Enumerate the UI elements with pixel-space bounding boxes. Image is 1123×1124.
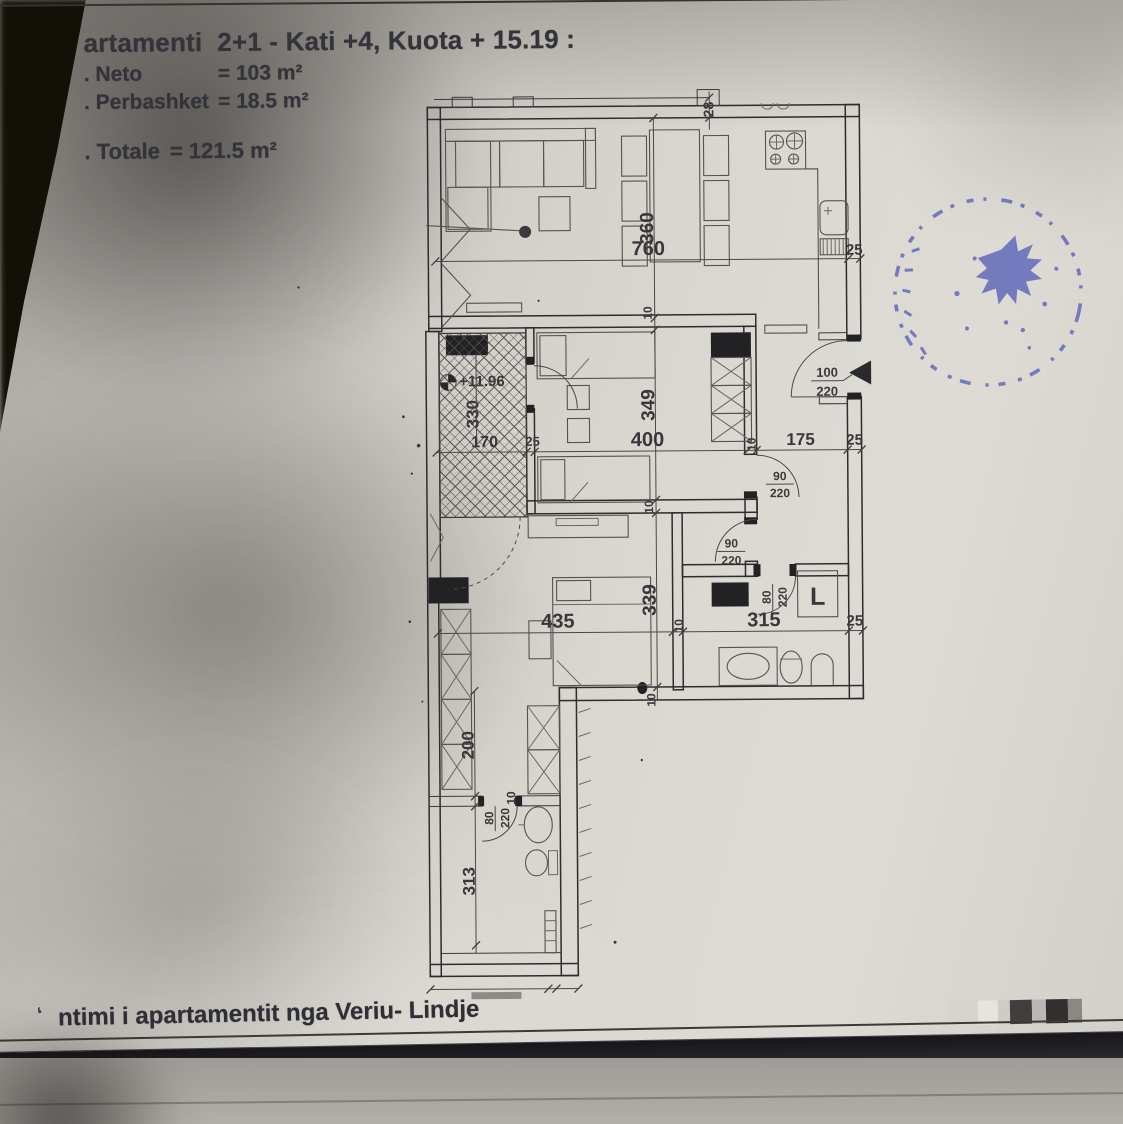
svg-text:220: 220 — [770, 486, 790, 500]
level-marker: +11.96 — [459, 373, 505, 390]
svg-text:90: 90 — [725, 536, 739, 550]
dim-400: 400 — [631, 429, 665, 451]
pillow — [557, 580, 591, 600]
svg-text:220: 220 — [721, 553, 741, 567]
dim-200: 200 — [459, 731, 478, 760]
kitchen-sink — [820, 201, 848, 235]
dim-25: 25 — [846, 432, 863, 449]
floor-plan-drawing: +11.96 330 — [0, 0, 1123, 1124]
stair-lobby: +11.96 330 — [439, 333, 527, 518]
tv-console — [467, 303, 522, 312]
stamp-eagle-emblem — [969, 229, 1049, 312]
svg-text:220: 220 — [816, 384, 838, 399]
single-bed — [537, 332, 655, 379]
bedroom-2 — [448, 515, 651, 686]
kitchen-shelf — [765, 325, 807, 333]
living-room — [425, 128, 596, 312]
scan-background-bottom — [0, 1058, 1123, 1124]
stamp — [878, 182, 1099, 403]
toilet — [780, 651, 802, 683]
dim-435: 435 — [541, 611, 575, 633]
dim-315: 315 — [747, 609, 781, 631]
dim-10: 10 — [672, 619, 686, 633]
scanned-floor-plan-page: artamenti 2+1 - Kati +4, Kuota + 15.19 :… — [0, 0, 1123, 1124]
dim-10: 10 — [504, 791, 518, 805]
door-90-bedroom1: 90 220 — [757, 455, 799, 500]
hall-wardrobe — [711, 357, 752, 441]
nightstand — [567, 418, 589, 442]
bathroom-sink — [524, 807, 552, 843]
single-bed — [538, 456, 650, 503]
facade-ticks — [578, 708, 592, 928]
chair — [703, 135, 728, 175]
dim-25: 25 — [525, 434, 540, 449]
svg-text:90: 90 — [773, 469, 787, 483]
entry-door: 100 220 — [791, 340, 871, 399]
chair — [621, 136, 646, 176]
pillow — [541, 460, 565, 500]
door-80-bathroom-small: 80 220 — [482, 806, 517, 841]
svg-text:100: 100 — [816, 365, 838, 380]
dim-25: 25 — [846, 613, 863, 630]
laundry-label: L — [810, 583, 825, 611]
dim-10: 10 — [641, 306, 655, 320]
dim-175: 175 — [786, 430, 815, 449]
svg-text:220: 220 — [776, 587, 790, 607]
dim-330: 330 — [463, 400, 482, 429]
dim-10: 10 — [644, 693, 658, 707]
entry-arrow-icon — [849, 360, 871, 384]
vent-icon — [761, 103, 789, 109]
dim-339: 339 — [640, 584, 661, 616]
dish-rack — [820, 239, 848, 255]
dim-28: 28 — [700, 102, 716, 118]
bidet — [811, 654, 833, 685]
dim-10: 10 — [642, 500, 656, 514]
svg-text:80: 80 — [482, 811, 496, 825]
coffee-table — [539, 197, 570, 231]
sofa — [445, 128, 595, 141]
chair — [704, 180, 729, 220]
dim-349: 349 — [638, 389, 659, 421]
bathroom-small — [518, 807, 558, 953]
dim-360: 360 — [637, 212, 658, 244]
kitchen — [763, 131, 848, 334]
dim-10: 10 — [745, 437, 759, 451]
kitchen-counter — [806, 169, 819, 329]
bathroom-sink — [727, 653, 769, 679]
svg-text:80: 80 — [760, 590, 774, 604]
dim-313: 313 — [460, 867, 479, 896]
svg-text:220: 220 — [498, 808, 512, 828]
dim-170: 170 — [471, 434, 498, 451]
door-90-bedroom2: 90 220 — [715, 519, 757, 567]
toilet — [525, 850, 547, 876]
dim-25: 25 — [846, 242, 863, 259]
nightstand — [567, 385, 589, 409]
radiator — [545, 911, 556, 953]
